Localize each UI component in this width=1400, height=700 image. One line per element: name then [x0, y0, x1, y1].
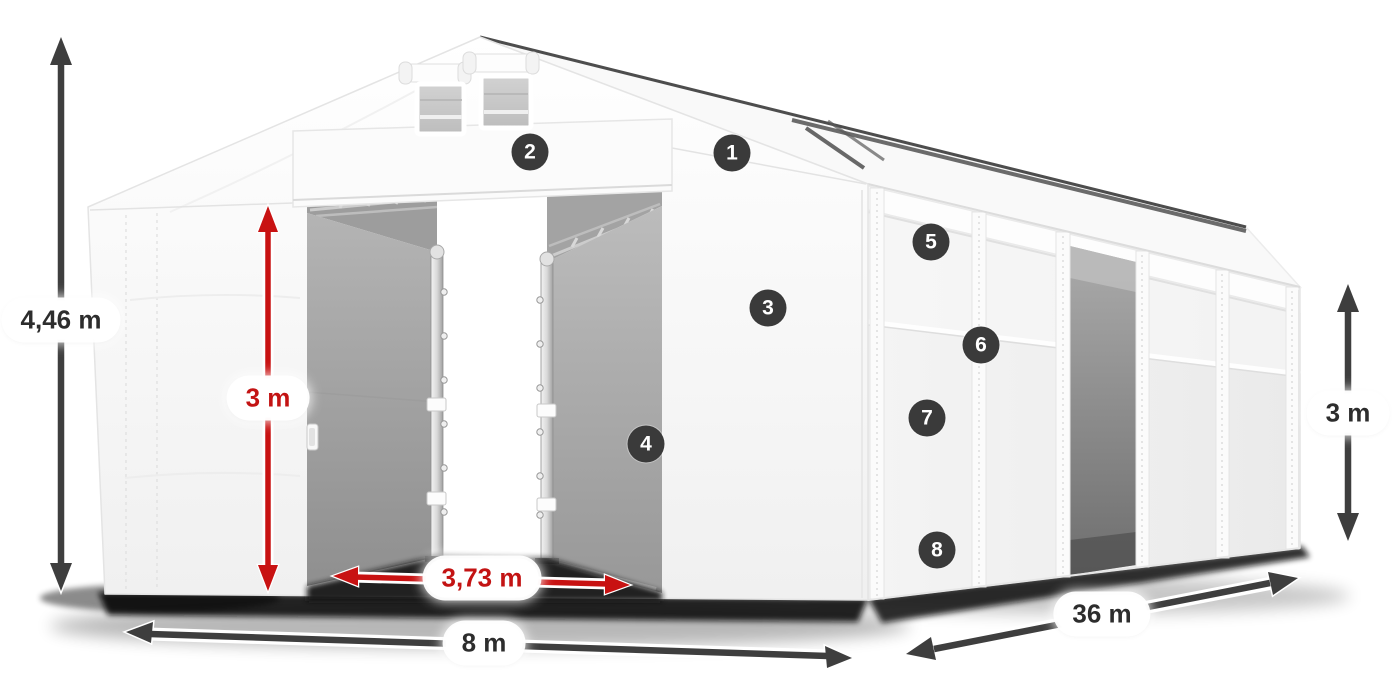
dimension-label-side-height: 3 m	[1310, 394, 1387, 433]
feature-marker-4: 4	[628, 426, 665, 463]
feature-marker-8: 8	[919, 532, 956, 569]
door-lintel-beam	[293, 119, 672, 207]
interior-left-door-panel	[307, 213, 437, 586]
dimension-label-front-width: 8 m	[446, 624, 523, 663]
feature-marker-1: 1	[714, 135, 751, 172]
tent-diagram: 12345678 4,46 m3 m3,73 m8 m36 m3 m	[0, 0, 1400, 700]
side-doorway-opening	[1070, 246, 1136, 575]
feature-marker-7: 7	[909, 400, 946, 437]
dimension-label-side-length: 36 m	[1056, 595, 1147, 634]
feature-marker-5: 5	[913, 224, 950, 261]
door-opening	[307, 187, 662, 601]
door-handle	[307, 424, 318, 450]
feature-marker-6: 6	[963, 327, 1000, 364]
dimension-label-door-width: 3,73 m	[426, 559, 539, 598]
tent-illustration	[0, 0, 1400, 700]
feature-marker-3: 3	[750, 290, 787, 327]
interior-right-door-panel	[547, 206, 662, 593]
feature-marker-2: 2	[512, 134, 549, 171]
dimension-label-door-height: 3 m	[230, 379, 307, 418]
dimension-label-total-height: 4,46 m	[5, 301, 118, 340]
